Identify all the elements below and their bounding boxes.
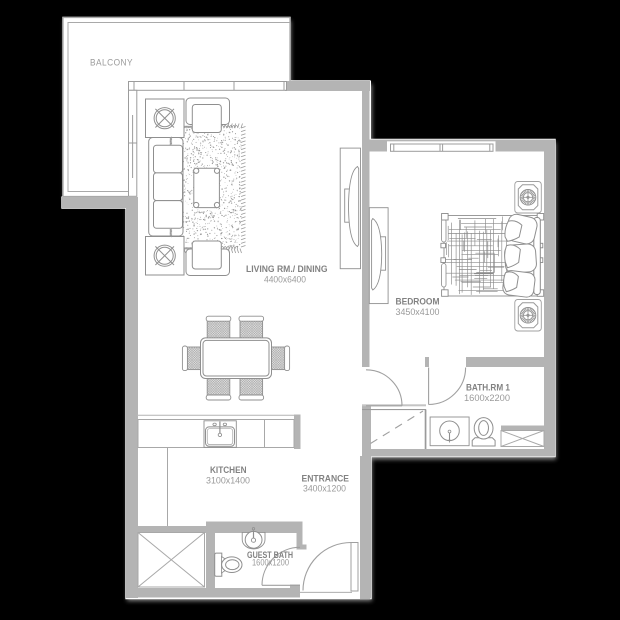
svg-text:BEDROOM: BEDROOM <box>396 297 440 307</box>
svg-text:LIVING RM./ DINING: LIVING RM./ DINING <box>246 264 328 274</box>
svg-text:3450x4100: 3450x4100 <box>396 307 440 317</box>
svg-text:BATH.RM 1: BATH.RM 1 <box>466 382 510 392</box>
svg-text:4400x6400: 4400x6400 <box>264 274 306 284</box>
svg-text:3100x1400: 3100x1400 <box>206 476 250 486</box>
svg-text:1600x2200: 1600x2200 <box>464 393 510 403</box>
svg-text:1600x1200: 1600x1200 <box>252 558 289 568</box>
svg-text:KITCHEN: KITCHEN <box>210 465 247 475</box>
svg-text:BALCONY: BALCONY <box>90 58 133 68</box>
svg-text:3400x1200: 3400x1200 <box>303 483 346 493</box>
svg-text:ENTRANCE: ENTRANCE <box>302 474 350 484</box>
